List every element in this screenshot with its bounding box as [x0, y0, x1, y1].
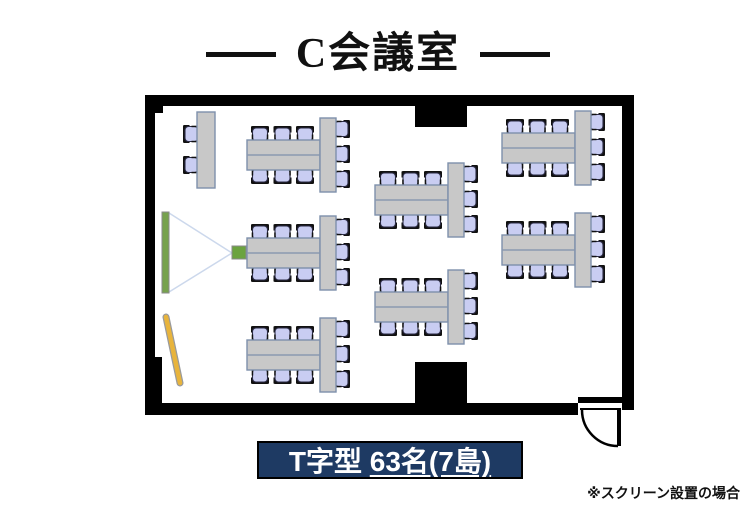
title-rule-left: [206, 52, 276, 57]
page: C会議室: [0, 0, 756, 525]
side-chair: [183, 125, 198, 143]
footnote: ※スクリーン設置の場合: [587, 483, 740, 503]
title-rule-right: [480, 52, 550, 57]
wall-left: [145, 95, 155, 415]
island-left-bottom: [247, 318, 350, 392]
island-right-middle: [502, 213, 605, 287]
pillar-bottom: [415, 362, 467, 403]
corner-block-top-left: [155, 106, 163, 113]
projector: [232, 246, 246, 259]
island-center-bottom: [375, 270, 478, 344]
wall-step-bottom-left: [155, 357, 162, 403]
island-center-top: [375, 163, 478, 237]
page-title-row: C会議室: [0, 26, 756, 82]
screen: [162, 212, 169, 293]
wall-right: [622, 95, 634, 410]
door-header: [578, 397, 627, 403]
wall-top: [145, 95, 634, 106]
wall-bottom: [145, 403, 578, 415]
capacity-layout-text: T字型: [289, 440, 370, 480]
floor-plan: [145, 95, 640, 460]
island-left-middle: [247, 216, 350, 290]
capacity-detail-text: 63名(7島): [370, 440, 491, 480]
capacity-label: T字型 63名(7島): [257, 441, 523, 479]
island-right-top: [502, 111, 605, 185]
island-left-top: [247, 118, 350, 192]
door-leaf: [617, 409, 621, 446]
side-table: [197, 112, 215, 188]
page-title: C会議室: [296, 33, 460, 75]
door-swing-arc: [582, 410, 618, 446]
pillar-top: [415, 106, 467, 127]
side-chair: [183, 156, 198, 174]
